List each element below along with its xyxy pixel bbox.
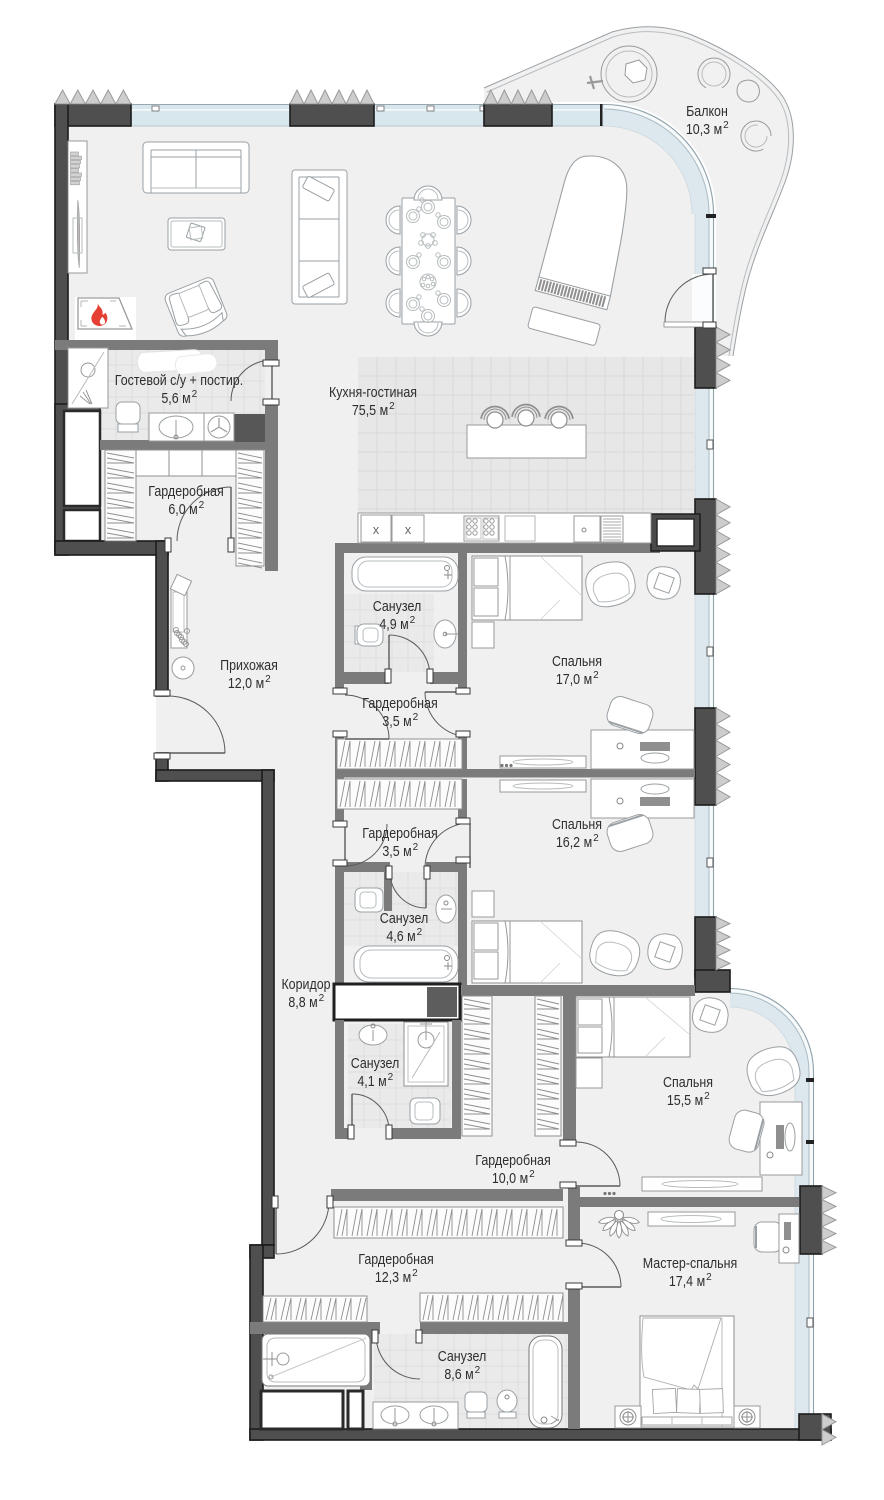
svg-text:12,3 м: 12,3 м	[375, 1269, 411, 1286]
svg-text:17,0 м: 17,0 м	[556, 671, 592, 688]
svg-text:Спальня: Спальня	[552, 653, 602, 670]
svg-text:2: 2	[265, 674, 271, 685]
svg-text:15,5 м: 15,5 м	[667, 1092, 703, 1109]
svg-text:x: x	[373, 522, 380, 537]
svg-text:2: 2	[593, 833, 599, 844]
svg-text:Гардеробная: Гардеробная	[475, 1152, 550, 1169]
svg-text:Прихожая: Прихожая	[220, 657, 278, 674]
svg-text:Гардеробная: Гардеробная	[358, 1251, 433, 1268]
svg-text:Гардеробная: Гардеробная	[148, 483, 223, 500]
svg-text:2: 2	[412, 1268, 418, 1279]
svg-text:x: x	[405, 522, 412, 537]
svg-text:2: 2	[192, 389, 198, 400]
svg-text:2: 2	[723, 120, 729, 131]
svg-text:Санузел: Санузел	[438, 1348, 487, 1365]
svg-text:3,5 м: 3,5 м	[382, 713, 411, 730]
svg-text:2: 2	[319, 993, 325, 1004]
svg-text:3,5 м: 3,5 м	[382, 843, 411, 860]
svg-text:2: 2	[389, 401, 395, 412]
svg-text:2: 2	[529, 1169, 535, 1180]
svg-text:Кухня-гостиная: Кухня-гостиная	[329, 384, 417, 401]
svg-text:Гардеробная: Гардеробная	[362, 825, 437, 842]
svg-text:10,0 м: 10,0 м	[492, 1170, 528, 1187]
svg-text:Санузел: Санузел	[380, 910, 429, 927]
svg-text:2: 2	[706, 1272, 712, 1283]
svg-text:10,3 м: 10,3 м	[686, 121, 722, 138]
svg-text:Гардеробная: Гардеробная	[362, 695, 437, 712]
svg-text:Коридор: Коридор	[281, 976, 330, 993]
svg-text:2: 2	[704, 1091, 710, 1102]
svg-text:Санузел: Санузел	[373, 598, 422, 615]
svg-text:Балкон: Балкон	[686, 103, 728, 120]
svg-text:16,2 м: 16,2 м	[556, 834, 592, 851]
svg-text:12,0 м: 12,0 м	[228, 675, 264, 692]
svg-text:2: 2	[199, 500, 205, 511]
svg-text:2: 2	[413, 842, 419, 853]
svg-text:2: 2	[417, 927, 423, 938]
svg-text:2: 2	[388, 1072, 394, 1083]
svg-text:4,1 м: 4,1 м	[357, 1073, 386, 1090]
svg-text:2: 2	[410, 615, 416, 626]
svg-text:75,5 м: 75,5 м	[352, 402, 388, 419]
svg-text:4,6 м: 4,6 м	[386, 928, 415, 945]
svg-text:17,4 м: 17,4 м	[669, 1273, 705, 1290]
svg-text:Санузел: Санузел	[351, 1055, 400, 1072]
svg-text:6,0 м: 6,0 м	[168, 501, 197, 518]
svg-text:Гостевой с/у + постир.: Гостевой с/у + постир.	[115, 372, 243, 389]
svg-text:5,6 м: 5,6 м	[161, 390, 190, 407]
svg-text:2: 2	[475, 1365, 481, 1376]
svg-text:Спальня: Спальня	[663, 1074, 713, 1091]
svg-text:4,9 м: 4,9 м	[379, 616, 408, 633]
svg-text:8,6 м: 8,6 м	[444, 1366, 473, 1383]
svg-text:2: 2	[593, 670, 599, 681]
svg-text:8,8 м: 8,8 м	[288, 994, 317, 1011]
svg-text:2: 2	[413, 712, 419, 723]
svg-text:Спальня: Спальня	[552, 816, 602, 833]
svg-text:Мастер-спальня: Мастер-спальня	[643, 1255, 738, 1272]
